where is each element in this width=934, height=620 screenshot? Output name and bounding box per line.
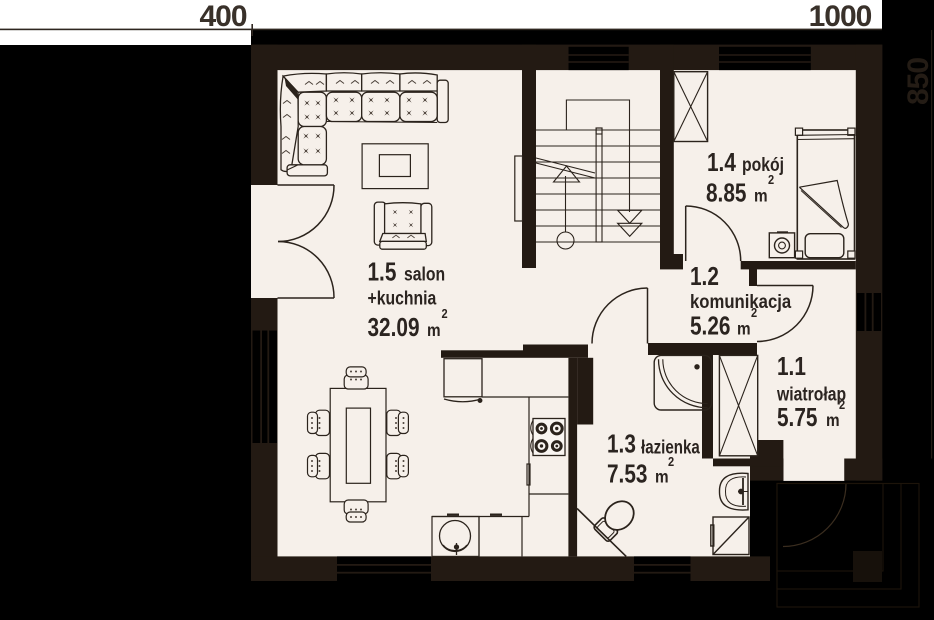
svg-text:m: m	[427, 320, 441, 340]
svg-text:2: 2	[768, 172, 774, 187]
svg-text:+kuchnia: +kuchnia	[368, 287, 437, 309]
svg-text:wiatrołap: wiatrołap	[776, 383, 846, 405]
svg-text:1.1: 1.1	[777, 352, 806, 381]
svg-text:850: 850	[902, 58, 934, 105]
svg-text:32.09: 32.09	[368, 313, 420, 342]
svg-text:5.75: 5.75	[777, 403, 817, 432]
svg-text:m: m	[754, 185, 768, 205]
svg-text:pokój: pokój	[742, 154, 784, 176]
svg-text:2: 2	[839, 397, 845, 412]
svg-text:m: m	[655, 467, 669, 487]
svg-text:1.2: 1.2	[690, 262, 719, 291]
svg-text:1.3: 1.3	[607, 430, 636, 459]
svg-text:m: m	[737, 318, 751, 338]
svg-text:8.85: 8.85	[706, 178, 746, 207]
svg-text:7.53: 7.53	[607, 460, 647, 489]
svg-text:5.26: 5.26	[690, 311, 730, 340]
svg-text:1.4: 1.4	[707, 148, 736, 177]
svg-text:1000: 1000	[809, 0, 872, 33]
svg-text:m: m	[826, 410, 840, 430]
svg-text:2: 2	[442, 306, 448, 321]
svg-text:2: 2	[751, 305, 757, 320]
svg-text:komunikacja: komunikacja	[690, 291, 792, 312]
svg-text:1.5: 1.5	[368, 257, 397, 286]
svg-text:salon: salon	[404, 263, 445, 285]
svg-text:2: 2	[668, 454, 674, 469]
svg-text:400: 400	[199, 0, 246, 33]
